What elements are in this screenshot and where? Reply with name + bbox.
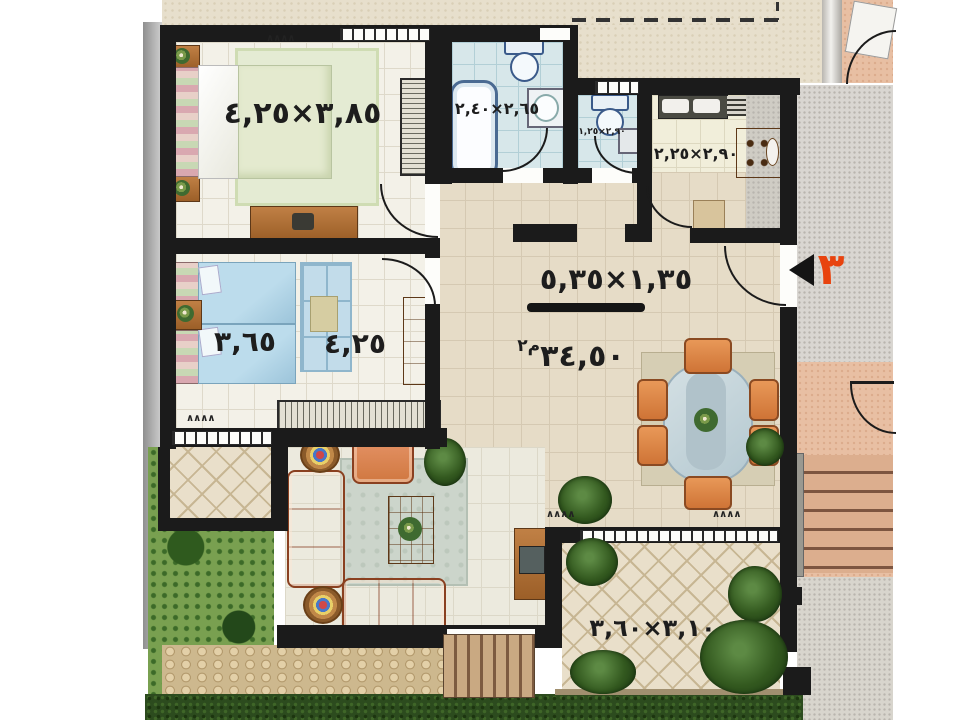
dresser-handle: [292, 213, 314, 230]
flower-pot: [174, 180, 190, 196]
property-dashed-line-vertical: [776, 2, 779, 20]
wall-balcony-bottom: [160, 518, 274, 531]
dimension-label-wc: ٢,٩٠×١,٢٥: [566, 124, 638, 140]
window-bedroom1: [340, 28, 430, 41]
balcony-floor: [170, 440, 271, 520]
console-mirror: [519, 546, 545, 574]
window-wc: [595, 81, 639, 94]
vent-mark: ∧∧∧∧: [546, 510, 574, 520]
vent-mark: ∧∧∧∧: [712, 510, 740, 520]
total-area-value: ٣٤,٥٠: [540, 339, 625, 374]
wall-balcony-right: [271, 438, 288, 531]
terrace-plant: [566, 538, 618, 586]
kitchen-sink-basin: [662, 99, 689, 113]
wall-left: [160, 25, 176, 449]
dining-centerpiece: [694, 408, 718, 432]
twin-bed-pillow: [198, 265, 222, 296]
dimension-label-hall: ١,٣٥×٥,٣٥: [518, 256, 714, 302]
dining-chair: [637, 379, 668, 421]
stone-path: [162, 645, 444, 697]
building-stairs: [800, 455, 893, 573]
exterior-ground-top-right: [780, 0, 822, 83]
wall-bathroom-right: [563, 25, 578, 184]
terrace-steps: [443, 634, 535, 698]
dimension-label-bedroom2-b: ٤,٢٥: [313, 324, 397, 362]
terrace-plant: [570, 650, 636, 694]
property-dashed-line: [572, 18, 778, 22]
dining-chair: [684, 476, 732, 510]
side-table: [303, 586, 343, 624]
vent-mark: ∧∧∧∧: [186, 414, 214, 424]
dining-chair: [684, 338, 732, 374]
wall-lobby-stub: [513, 224, 577, 242]
total-area-divider: [527, 303, 645, 312]
kitchen-cabinet: [693, 200, 725, 230]
opening-bathroom-top: [540, 28, 570, 40]
wall-right: [780, 78, 797, 652]
toilet-bowl: [510, 52, 539, 82]
wall-bedroom-divider: [160, 238, 440, 254]
wall-right-bump: [780, 587, 802, 605]
dimension-label-bedroom1: ٣,٨٥×٤,٢٥: [205, 92, 400, 134]
kitchen-sink-basin: [693, 99, 720, 113]
vent-mark: ∧∧∧∧: [266, 34, 294, 44]
stair-landing: [797, 85, 893, 362]
entrance-arrow-icon: [789, 254, 814, 286]
wall-kitchen-bottom: [690, 228, 780, 243]
floor-plan-canvas: ∧∧∧∧ ∧∧∧∧ ∧∧∧∧ ∧∧∧∧ ٣,٨٥×٤,٢٥ ٢,٦٥×٢,٤٠ …: [0, 0, 960, 720]
coffee-table-flowers: [398, 517, 422, 541]
wall-lobby-pillar: [625, 224, 649, 242]
terrace-plant: [746, 428, 784, 466]
window-bedroom2: [172, 431, 272, 445]
total-area-label: م٢٣٤,٥٠: [492, 334, 650, 378]
total-area-unit: م٢: [517, 336, 540, 356]
wall-corner-post: [783, 667, 811, 695]
sofa: [287, 470, 345, 588]
entrance-number: ٣: [812, 240, 850, 298]
dining-chair: [749, 379, 779, 421]
downspout-column: [822, 0, 842, 83]
stove-oval: [766, 138, 779, 166]
exterior-ground-top-recess: [577, 25, 780, 80]
flower-pot: [177, 305, 194, 322]
dimension-label-bathroom: ٢,٦٥×٢,٤٠: [447, 94, 547, 122]
dimension-label-bedroom2-a: ٣,٦٥: [205, 322, 285, 360]
window-terrace: [580, 530, 778, 542]
flower-pot: [174, 48, 190, 64]
sidewalk: [797, 577, 893, 720]
dining-chair: [637, 425, 668, 466]
dimension-label-kitchen: ٢,٩٠×٢,٢٥: [650, 140, 742, 166]
dimension-label-terrace: ٣,١٠×٣,٦٠: [545, 610, 760, 646]
kitchen-drainboard: [727, 96, 746, 116]
